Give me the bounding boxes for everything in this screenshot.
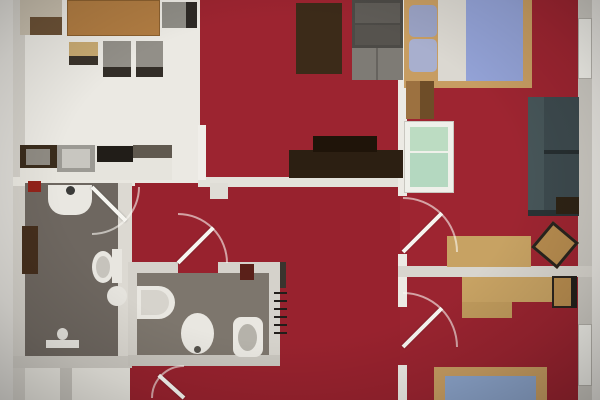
bathroom-main-towel-radiator	[22, 226, 38, 274]
wall-center-lower	[398, 365, 407, 400]
living-sofa-cushion2	[355, 25, 400, 45]
baby-crib-fabric-top	[410, 127, 448, 151]
dining-table	[67, 0, 160, 36]
bathroom-second-shelf-object	[240, 264, 254, 280]
bathroom-main-shower-head	[57, 328, 68, 340]
bathroom-main-sink-faucet	[66, 186, 75, 195]
dining-chair-left-back	[69, 56, 98, 65]
baby-crib-fabric-bottom	[410, 153, 448, 187]
dining-chair-south1-back	[103, 67, 131, 77]
wall-bathroom-main-bottom	[13, 356, 132, 368]
living-sofa-seam	[376, 48, 378, 80]
wall-entry-stub	[60, 368, 72, 400]
living-sofa-cushion1	[355, 3, 400, 23]
wall-hall-stub	[210, 183, 228, 199]
kitchen-counter-dark-left-inset	[26, 149, 50, 165]
kitchen-red-appliance	[28, 181, 41, 192]
hallway-radiator-fins	[274, 288, 287, 334]
living-sideboard-top-unit	[313, 136, 377, 152]
window-bedroom-bottom-right	[578, 324, 592, 386]
wall-left-outer	[13, 0, 25, 400]
living-sideboard	[289, 150, 403, 178]
window-bedroom-top-right	[578, 18, 592, 79]
kitchen-cabinet-dark-front	[30, 17, 62, 35]
bedroom-teal-sofa-seat-edge	[528, 97, 544, 216]
bathroom-second-sink-drain	[194, 346, 201, 353]
bathroom-main-toilet-seat	[96, 256, 110, 278]
hallway-radiator-pipe	[280, 262, 286, 288]
bedroom-desk2-main	[462, 277, 552, 302]
bedroom-dresser-dark-half	[420, 81, 434, 119]
kitchen-counter-dark-right	[133, 145, 172, 158]
bed-double-sheet	[438, 0, 466, 81]
bed-single-mattress	[445, 376, 536, 400]
bed-double-blanket	[466, 0, 523, 81]
wall-kitchen-living-stub	[198, 125, 206, 180]
wall-bathroom-second-left	[128, 262, 137, 366]
bathroom-main-shower-bar	[46, 340, 79, 348]
bathroom-main-stool	[107, 286, 127, 306]
bed-double-pillow2	[409, 39, 437, 72]
bathroom-second-toilet-bowl	[238, 324, 257, 351]
photo-margin-right	[592, 0, 600, 400]
dining-chair-right-back	[186, 2, 197, 28]
bedroom-desk2-chair-back	[571, 276, 577, 308]
dining-chair-right-seat	[162, 2, 187, 28]
bedroom-desk2-extension	[462, 302, 512, 318]
dining-chair-south1-seat	[103, 41, 131, 70]
bedroom-side-table	[556, 197, 579, 214]
bed-double-pillow1	[409, 5, 437, 37]
dining-chair-south2-back	[136, 67, 163, 77]
kitchen-stove	[97, 146, 133, 162]
bedroom-desk1	[447, 236, 531, 267]
wall-living-bottom	[198, 177, 405, 187]
living-coffee-table	[296, 3, 342, 74]
dining-chair-south2-seat	[136, 41, 163, 70]
bedroom-teal-sofa-seam	[544, 150, 579, 154]
floor-plan-photo	[0, 0, 600, 400]
bathroom-second-bathtub-inner	[141, 290, 169, 315]
kitchen-sink-basin	[62, 149, 90, 168]
